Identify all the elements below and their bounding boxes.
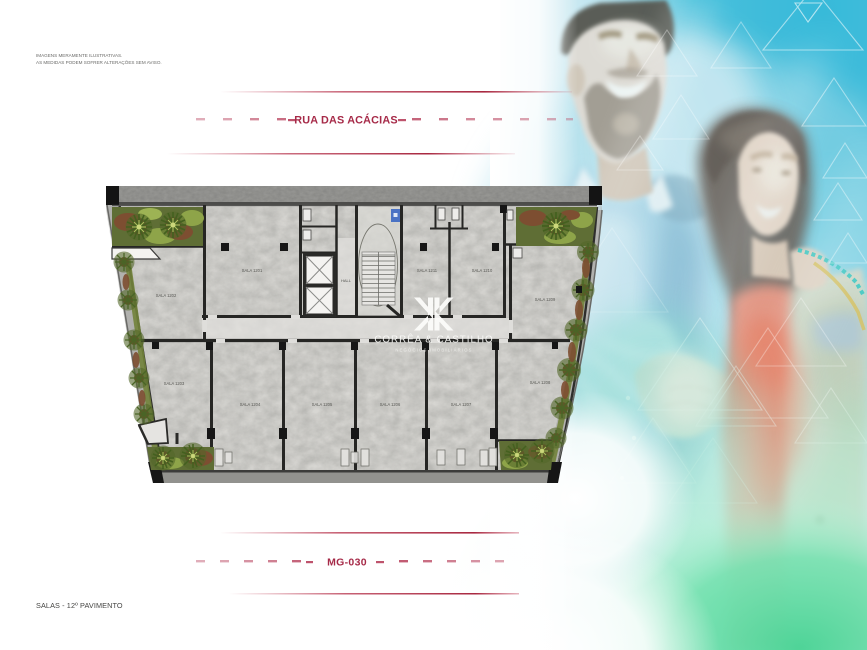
svg-text:RUA DAS ACÁCIAS: RUA DAS ACÁCIAS [294, 114, 398, 127]
svg-text:SALA 1211: SALA 1211 [417, 268, 438, 273]
svg-text:SALA 1201: SALA 1201 [242, 268, 263, 273]
svg-text:IMAGENS MERAMENTE ILUSTRATIVAS: IMAGENS MERAMENTE ILUSTRATIVAS. [36, 53, 122, 58]
svg-text:SALAS - 12º PAVIMENTO: SALAS - 12º PAVIMENTO [36, 601, 123, 610]
svg-text:SALA 1204: SALA 1204 [240, 402, 261, 407]
svg-text:SALA 1207: SALA 1207 [451, 402, 472, 407]
svg-text:NEGÓCIOS IMOBILIÁRIOS: NEGÓCIOS IMOBILIÁRIOS [395, 348, 472, 353]
svg-text:MG-030: MG-030 [327, 557, 367, 569]
svg-text:AS MEDIDAS PODEM SOFRER ALTERA: AS MEDIDAS PODEM SOFRER ALTERAÇÕES SEM A… [36, 59, 162, 65]
svg-text:SALA 1205: SALA 1205 [312, 402, 333, 407]
svg-text:SALA 1203: SALA 1203 [164, 381, 185, 386]
svg-text:HALL: HALL [341, 278, 352, 283]
svg-text:SALA 1206: SALA 1206 [380, 402, 401, 407]
svg-text:SALA 1210: SALA 1210 [472, 268, 493, 273]
svg-text:SALA 1202: SALA 1202 [156, 293, 177, 298]
svg-text:CORRÊA & CASTILHO: CORRÊA & CASTILHO [374, 335, 493, 346]
svg-text:SALA 1208: SALA 1208 [530, 380, 551, 385]
svg-text:SALA 1209: SALA 1209 [535, 297, 556, 302]
